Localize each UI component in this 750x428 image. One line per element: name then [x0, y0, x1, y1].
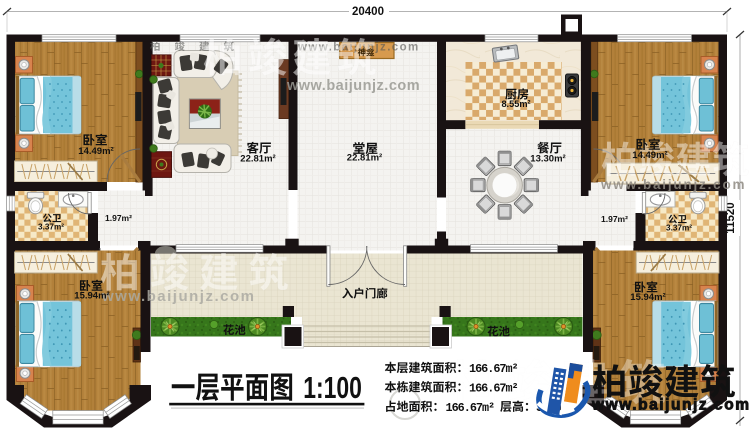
svg-text:1.97m²: 1.97m²: [601, 214, 628, 224]
svg-text:3.37m²: 3.37m²: [38, 223, 64, 232]
svg-text:www.baijunjz.com: www.baijunjz.com: [591, 397, 750, 414]
svg-text:22.81m²: 22.81m²: [347, 153, 382, 164]
svg-text:www.baijunjz.com: www.baijunjz.com: [101, 288, 255, 305]
svg-text:14.49m²: 14.49m²: [632, 150, 667, 161]
svg-text:166.67m²: 166.67m²: [469, 362, 518, 376]
svg-text:14.49m²: 14.49m²: [78, 146, 113, 157]
svg-text:166.67m²: 166.67m²: [469, 381, 518, 395]
svg-text:20400: 20400: [352, 6, 384, 18]
svg-text:13.30m²: 13.30m²: [530, 154, 565, 165]
svg-text:www.baijunjz.com: www.baijunjz.com: [600, 177, 746, 192]
svg-text:166.67m²: 166.67m²: [446, 401, 495, 415]
svg-text:22.81m²: 22.81m²: [240, 154, 275, 165]
svg-text:15.94m²: 15.94m²: [630, 292, 665, 303]
svg-text:1:100: 1:100: [303, 371, 362, 405]
svg-text:www.baijunjz.com: www.baijunjz.com: [286, 78, 420, 94]
svg-text:15.94m²: 15.94m²: [74, 291, 109, 302]
svg-text:1.97m²: 1.97m²: [105, 213, 132, 223]
svg-text:8.55m²: 8.55m²: [501, 99, 530, 109]
svg-text:3.37m²: 3.37m²: [666, 224, 692, 233]
